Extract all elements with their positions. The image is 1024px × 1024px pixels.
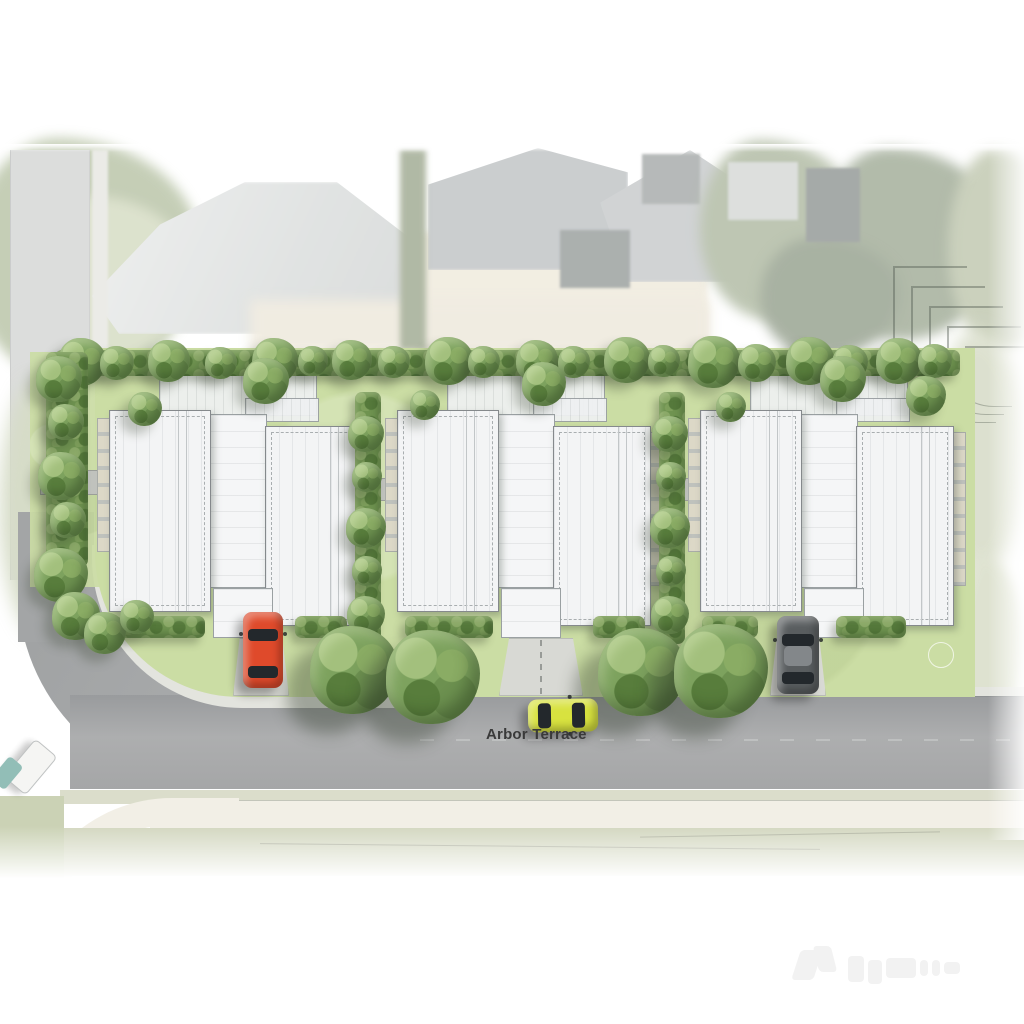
car-mirror bbox=[239, 632, 243, 636]
car-windscreen bbox=[248, 629, 278, 641]
roof-ridge bbox=[178, 411, 187, 611]
roof-ridge bbox=[466, 411, 475, 611]
townhouse-roof-left bbox=[397, 410, 499, 612]
watermark bbox=[796, 946, 986, 990]
watermark-text-shape bbox=[886, 958, 916, 978]
watermark-text-shape bbox=[868, 960, 882, 984]
car-roof-highlight bbox=[784, 646, 812, 666]
watermark-text-shape bbox=[932, 960, 940, 976]
watermark-text-shape bbox=[920, 960, 928, 976]
townhouse-roof-right bbox=[856, 426, 954, 626]
car-windscreen bbox=[572, 703, 585, 728]
footpath-south bbox=[150, 800, 1024, 829]
site-plan-canvas: Arbor Terrace bbox=[0, 0, 1024, 1024]
red-car bbox=[243, 612, 283, 688]
roof-ridge bbox=[921, 427, 930, 625]
grey-car bbox=[777, 616, 819, 694]
central-link-roof bbox=[209, 414, 267, 588]
roof-ridge bbox=[769, 411, 778, 611]
front-hedge bbox=[836, 616, 906, 638]
watermark-text-shape bbox=[944, 962, 960, 974]
watermark-text-shape bbox=[848, 956, 864, 982]
central-link-roof bbox=[800, 414, 858, 588]
car-rear-glass bbox=[538, 703, 551, 728]
bottom-fade bbox=[0, 826, 1024, 896]
lawn-feature-circle bbox=[928, 642, 954, 668]
top-fade bbox=[0, 144, 1024, 152]
driveway-dash bbox=[540, 640, 542, 694]
car-mirror bbox=[568, 695, 572, 699]
roof-ridge bbox=[618, 427, 627, 625]
townhouse-roof-left bbox=[700, 410, 802, 612]
car-rear-glass bbox=[782, 672, 814, 684]
right-fade bbox=[988, 140, 1024, 840]
street-name-label: Arbor Terrace bbox=[486, 726, 587, 743]
central-link-roof bbox=[497, 414, 555, 588]
car-mirror bbox=[819, 638, 823, 642]
townhouse-roof-right bbox=[553, 426, 651, 626]
side-courtyards bbox=[952, 432, 966, 586]
car-mirror bbox=[283, 632, 287, 636]
townhouse-roof-left bbox=[109, 410, 211, 612]
roof-ridge bbox=[330, 427, 339, 625]
car-rear-glass bbox=[248, 666, 278, 678]
garage-link-roof bbox=[501, 588, 561, 638]
car-windscreen bbox=[782, 634, 814, 646]
car-mirror bbox=[773, 638, 777, 642]
